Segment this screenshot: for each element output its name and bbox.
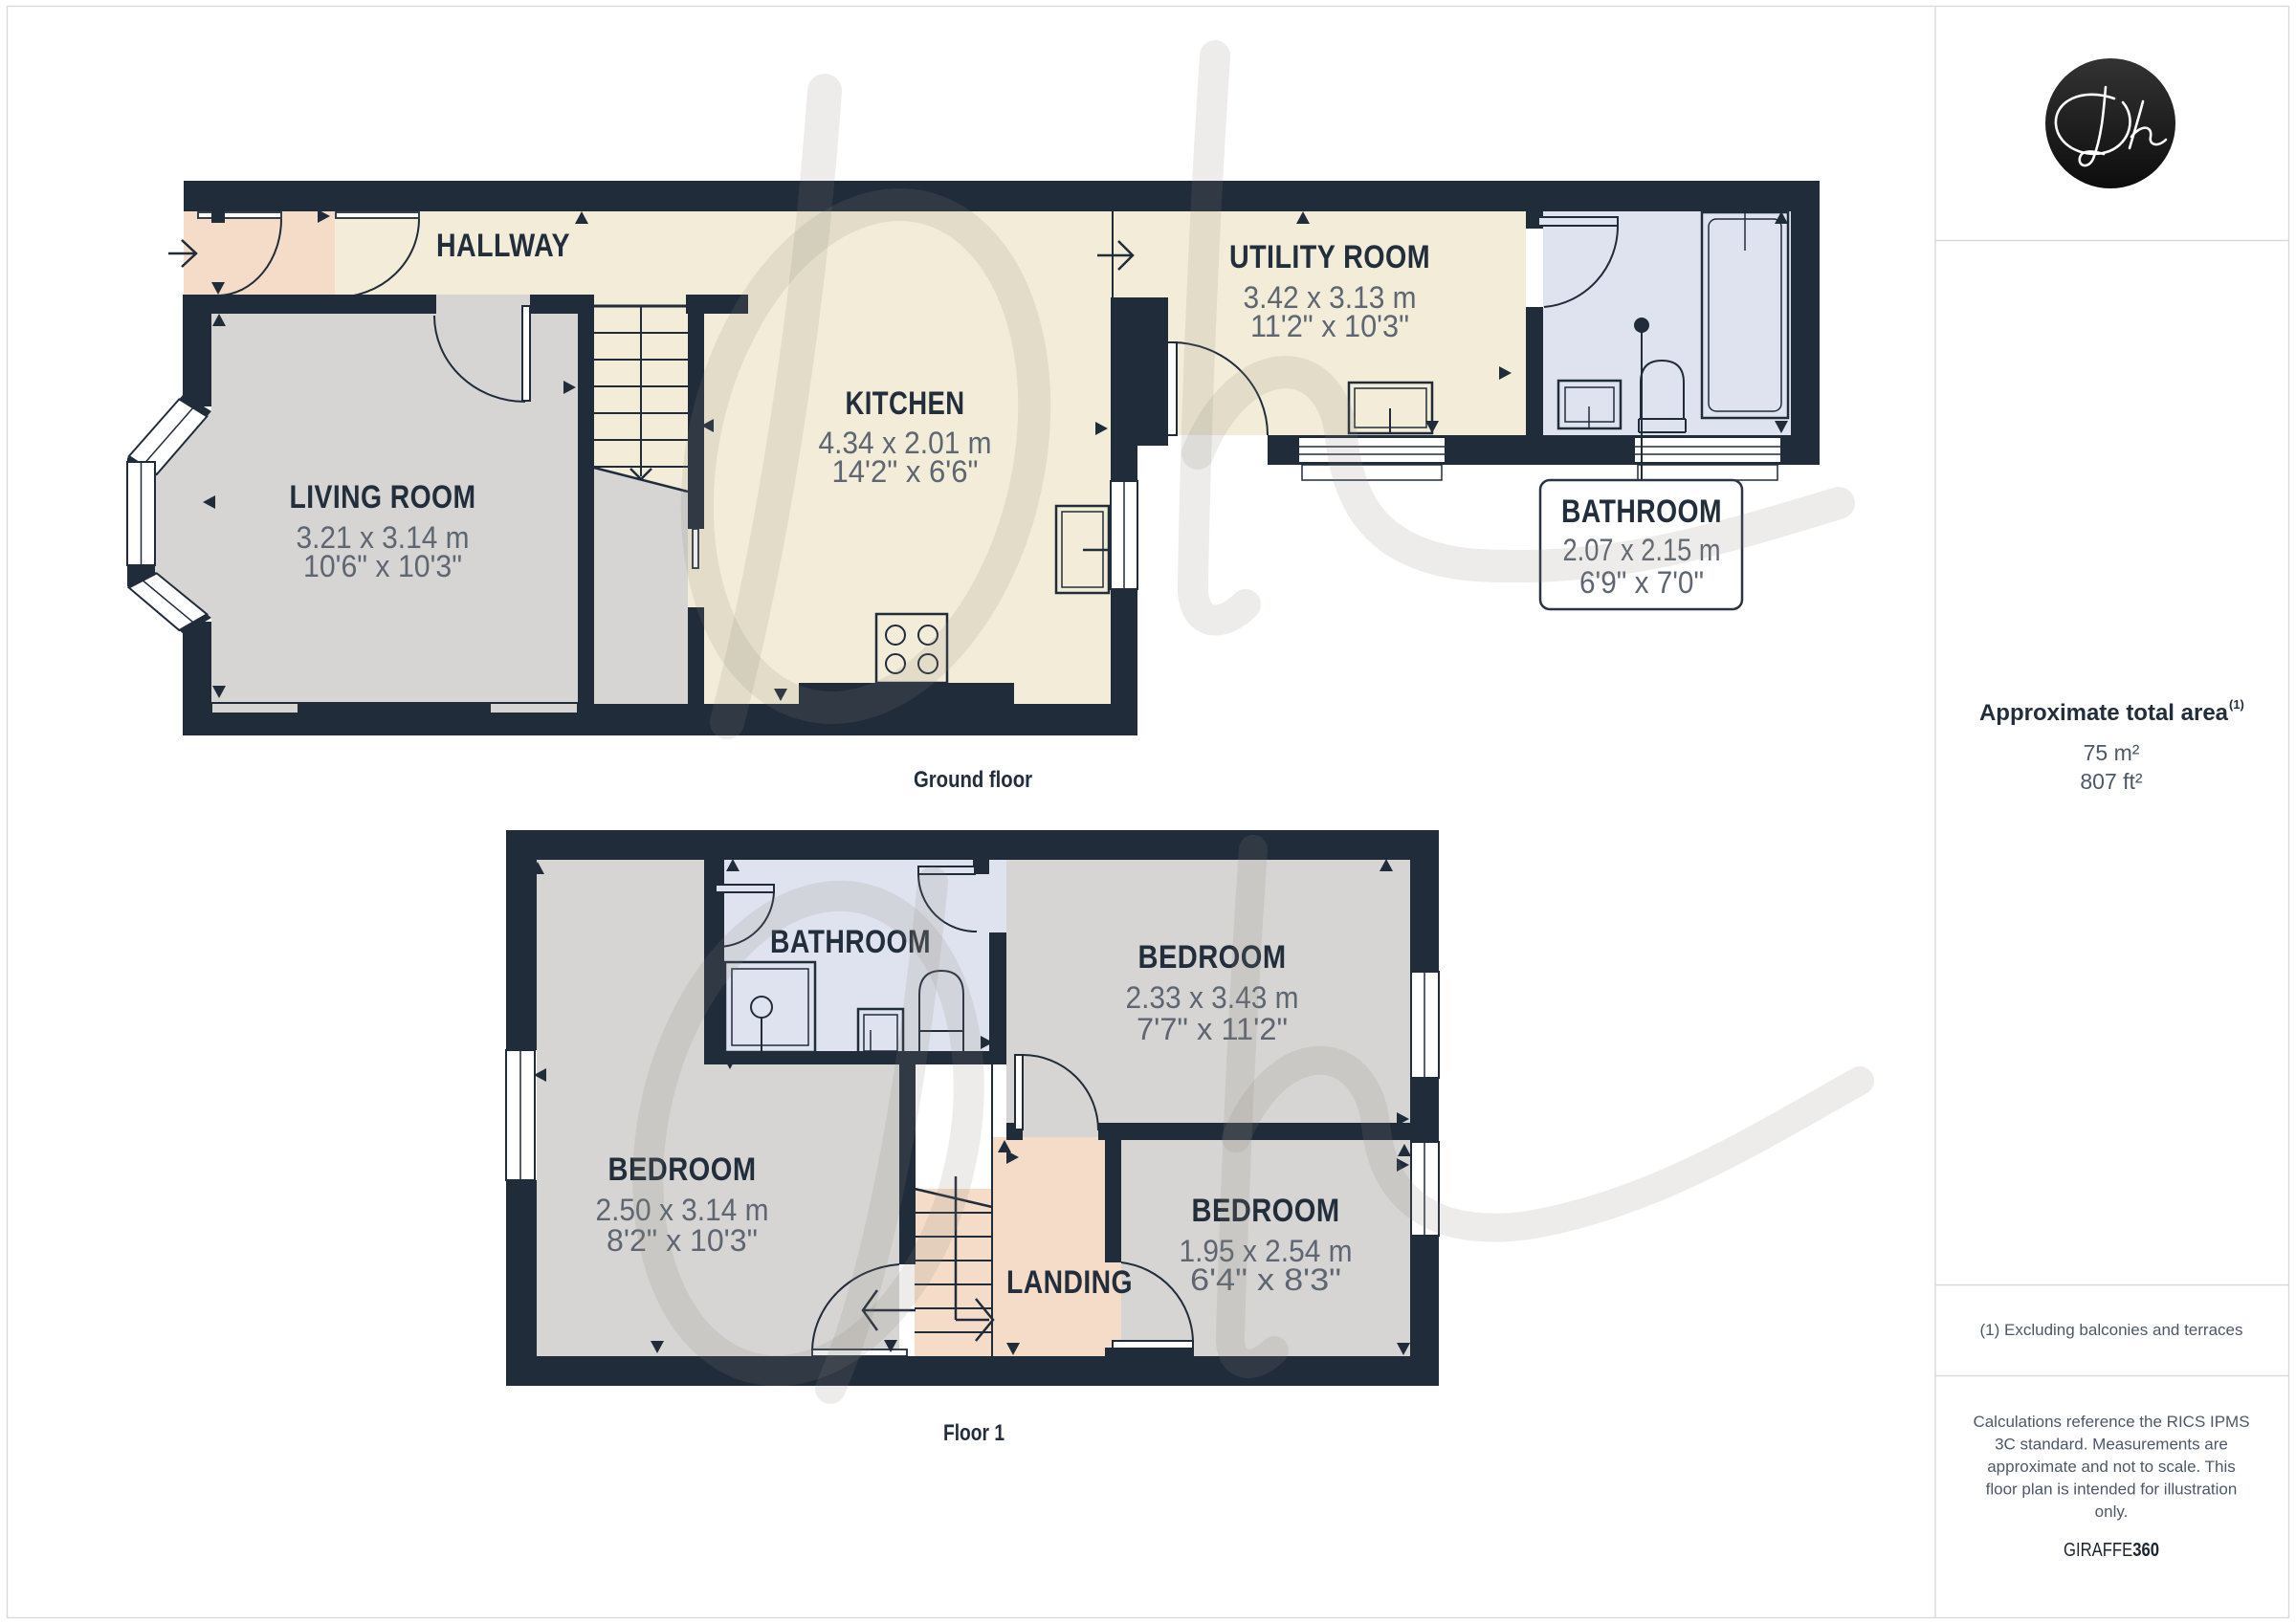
svg-text:2.33 x 3.43 m: 2.33 x 3.43 m [1126,980,1299,1015]
svg-text:BEDROOM: BEDROOM [1138,939,1287,976]
svg-text:LANDING: LANDING [1006,1264,1133,1301]
svg-text:75 m²: 75 m² [2084,740,2140,765]
svg-text:only.: only. [2095,1502,2129,1521]
svg-text:floor plan is intended for ill: floor plan is intended for illustration [1986,1480,2238,1499]
svg-text:10'6" x 10'3": 10'6" x 10'3" [303,549,462,583]
svg-text:Floor 1: Floor 1 [943,1420,1004,1446]
svg-text:(1): (1) [2229,697,2244,712]
svg-text:BEDROOM: BEDROOM [1192,1193,1340,1229]
svg-text:Approximate total area: Approximate total area [1979,700,2229,726]
svg-text:Calculations reference the RIC: Calculations reference the RICS IPMS [1973,1413,2249,1431]
svg-text:LIVING ROOM: LIVING ROOM [290,479,476,515]
svg-text:GIRAFFE360: GIRAFFE360 [2064,1540,2159,1561]
svg-text:UTILITY ROOM: UTILITY ROOM [1229,239,1430,275]
svg-text:approximate and not to scale.: approximate and not to scale. This [1987,1458,2236,1476]
svg-text:BATHROOM: BATHROOM [1561,493,1722,530]
svg-text:6'4" x 8'3": 6'4" x 8'3" [1190,1262,1341,1297]
svg-text:14'2" x 6'6": 14'2" x 6'6" [832,454,979,489]
svg-text:Ground floor: Ground floor [914,767,1032,793]
svg-text:807 ft²: 807 ft² [2080,769,2143,794]
svg-text:KITCHEN: KITCHEN [846,385,965,422]
svg-text:(1) Excluding balconies and te: (1) Excluding balconies and terraces [1980,1321,2243,1339]
svg-text:2.50 x 3.14 m: 2.50 x 3.14 m [596,1193,769,1227]
svg-text:8'2" x 10'3": 8'2" x 10'3" [607,1223,758,1258]
svg-text:7'7" x 11'2": 7'7" x 11'2" [1137,1012,1288,1046]
svg-text:3C standard. Measurements are: 3C standard. Measurements are [1995,1436,2228,1454]
svg-text:11'2" x 10'3": 11'2" x 10'3" [1250,309,1409,343]
svg-text:BEDROOM: BEDROOM [608,1151,757,1188]
svg-text:HALLWAY: HALLWAY [436,228,570,264]
